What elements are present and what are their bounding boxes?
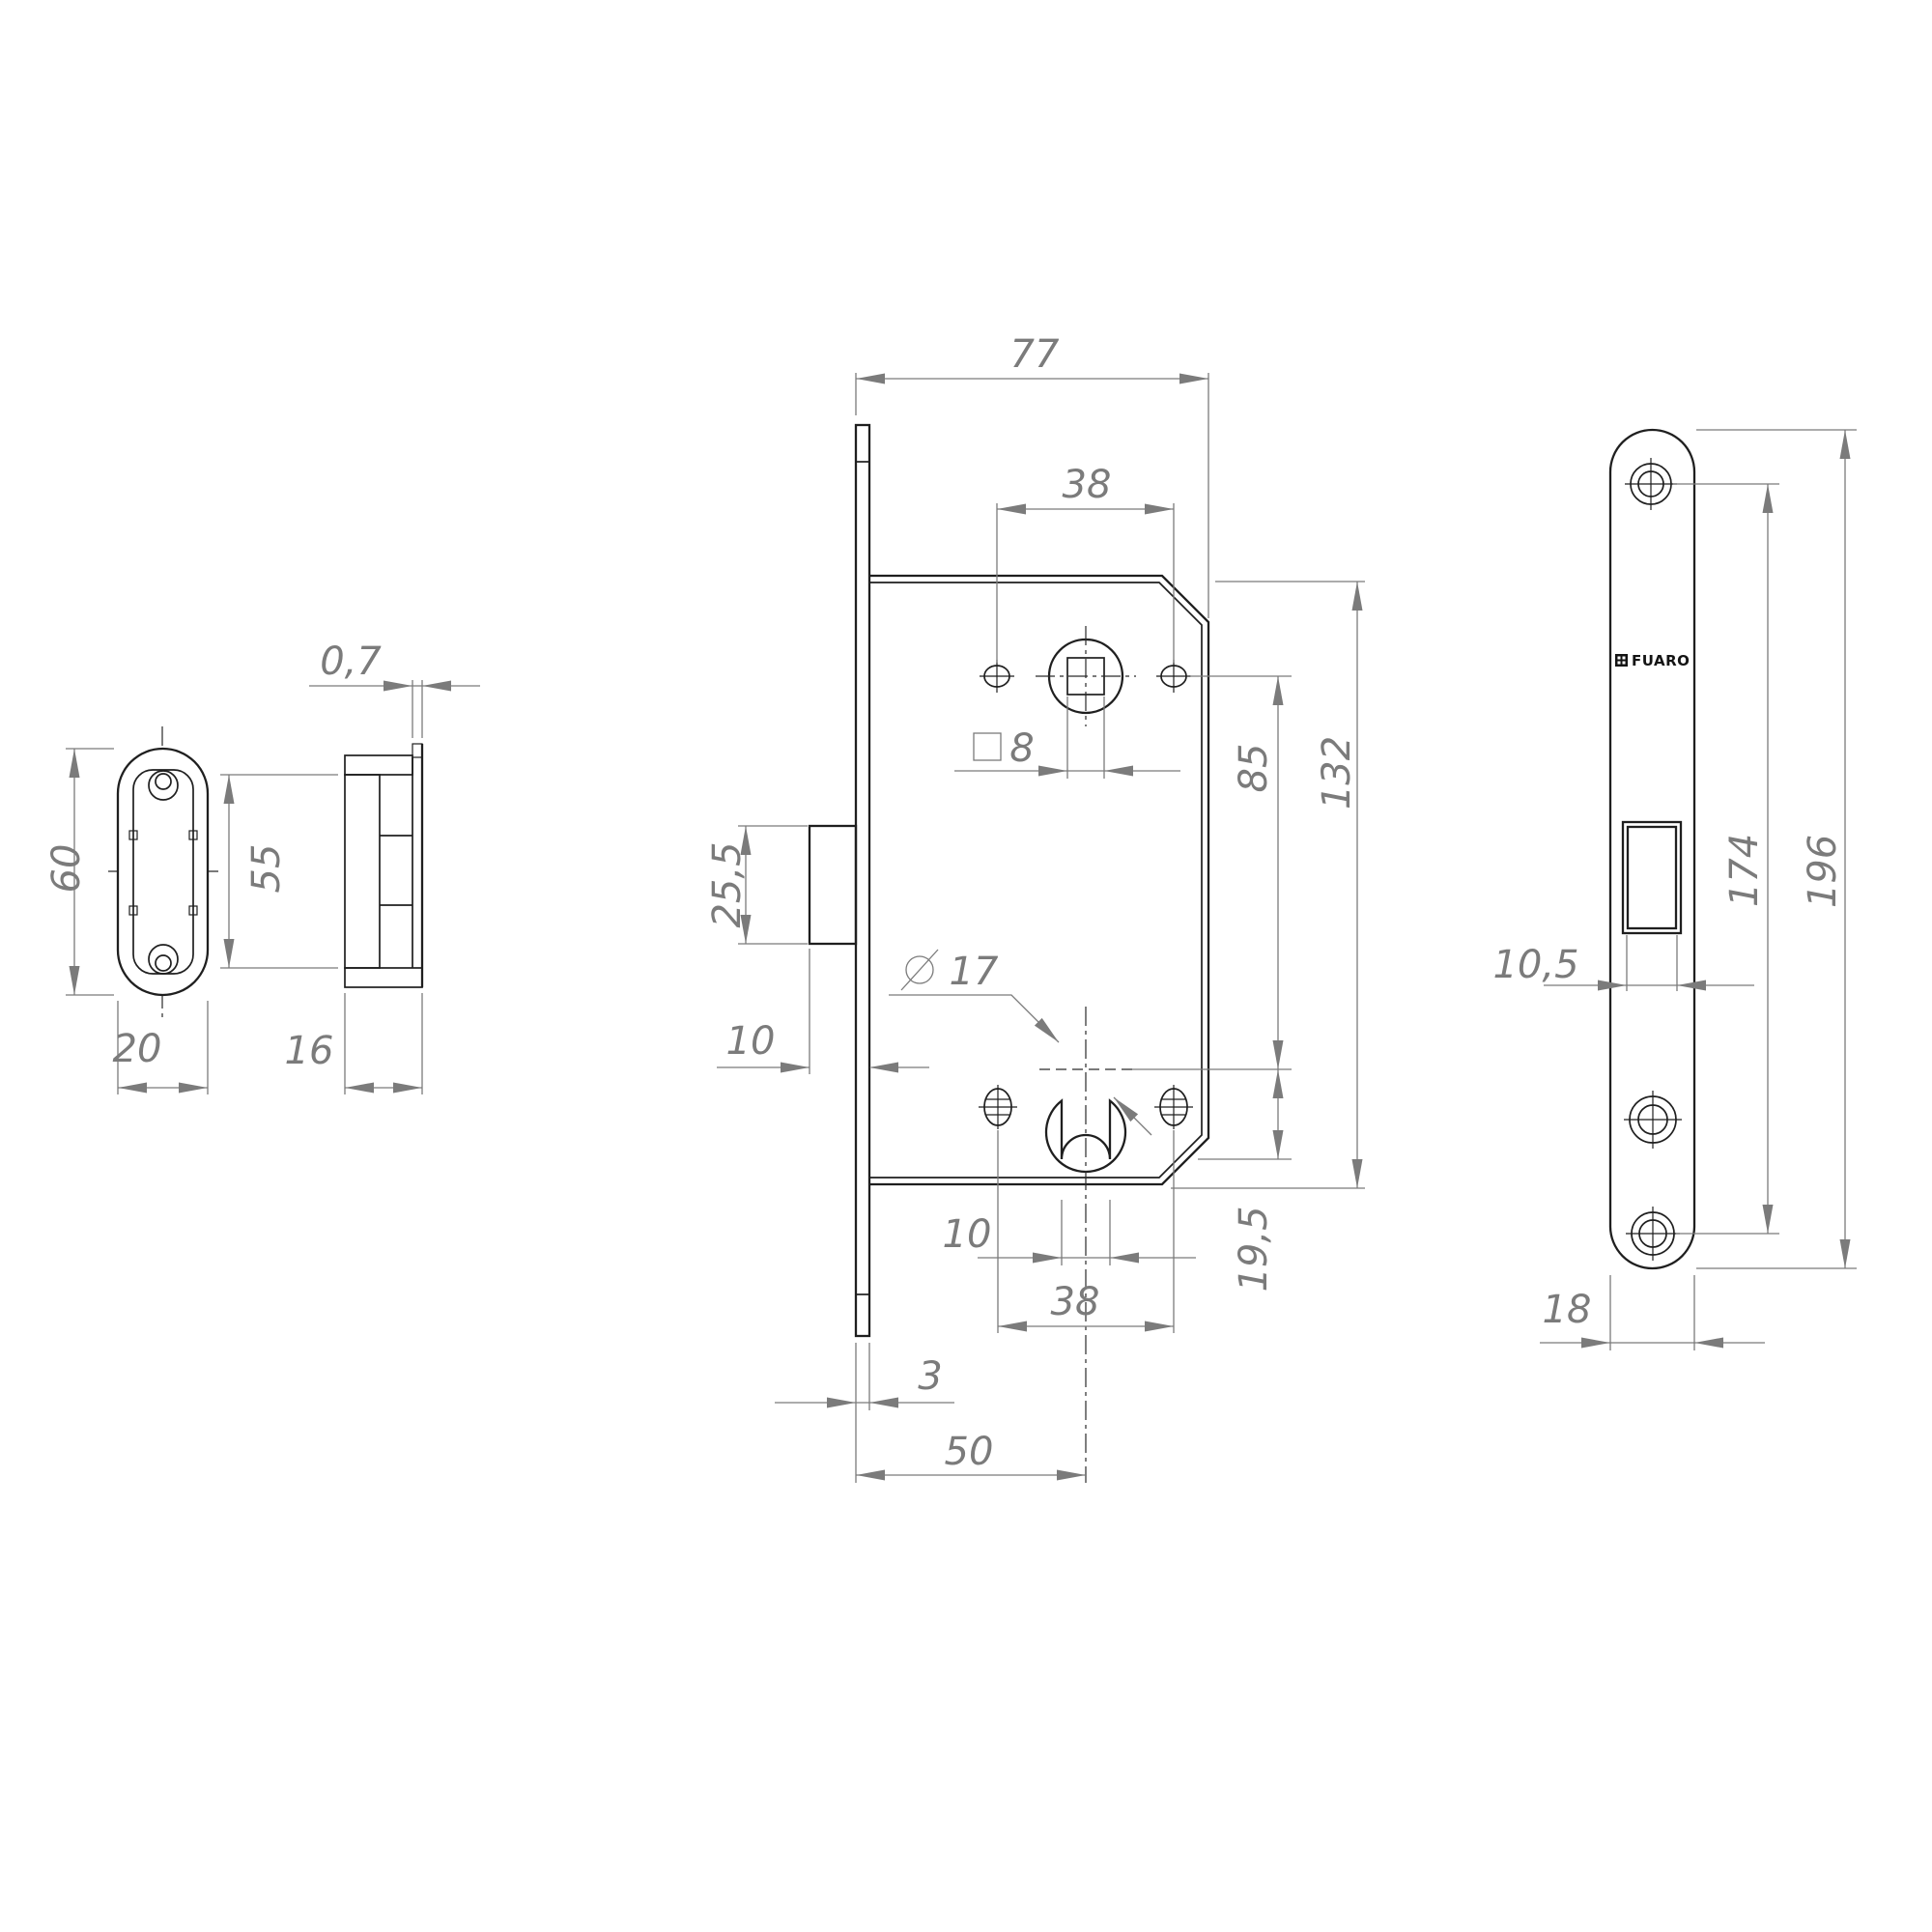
dim-text-38: 38 <box>1063 463 1112 507</box>
lock-technical-drawing: 60 20 0,7 <box>0 0 1932 1932</box>
dim-text-3: 3 <box>918 1354 942 1399</box>
dim-text-17: 17 <box>950 950 999 994</box>
dim-text-77: 77 <box>1010 332 1060 377</box>
faceplate-edge <box>856 425 869 1336</box>
dim-text-10: 10 <box>726 1019 776 1064</box>
strike-plate-outline <box>118 749 208 995</box>
dim-text-196: 196 <box>1801 835 1845 908</box>
dim-text-10-5: 10,5 <box>1492 943 1578 987</box>
dim-text-18: 18 <box>1543 1288 1592 1332</box>
brand-logo-icon <box>1615 654 1628 667</box>
dim-text-10: 10 <box>943 1212 992 1257</box>
dim-text-60: 60 <box>44 844 89 894</box>
dim-text-174: 174 <box>1722 834 1767 907</box>
dim-text-25-5: 25,5 <box>705 841 750 927</box>
dim-text-19-5: 19,5 <box>1232 1206 1276 1292</box>
dim-text-85: 85 <box>1232 744 1276 793</box>
dim-text-132: 132 <box>1315 736 1359 810</box>
dim-text-38: 38 <box>1051 1280 1100 1324</box>
brand-logo-text: FUARO <box>1632 652 1690 669</box>
dim-text-16: 16 <box>285 1029 334 1073</box>
dim-text-0-7: 0,7 <box>320 639 382 684</box>
dim-text-20: 20 <box>113 1027 162 1071</box>
dim-text-55: 55 <box>244 844 289 894</box>
dim-text-8: 8 <box>1009 726 1034 771</box>
dim-text-50: 50 <box>945 1430 994 1474</box>
